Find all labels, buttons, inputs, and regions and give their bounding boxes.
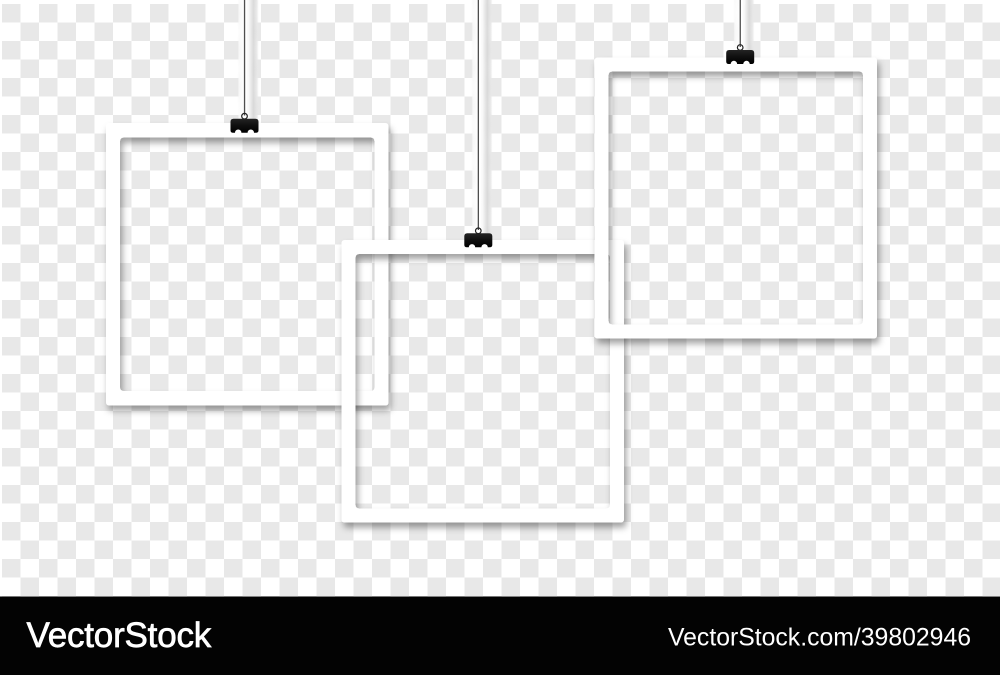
svg-text:VectorStock.com/39802946: VectorStock.com/39802946 xyxy=(668,624,971,652)
svg-text:VectorStock: VectorStock xyxy=(27,616,212,655)
